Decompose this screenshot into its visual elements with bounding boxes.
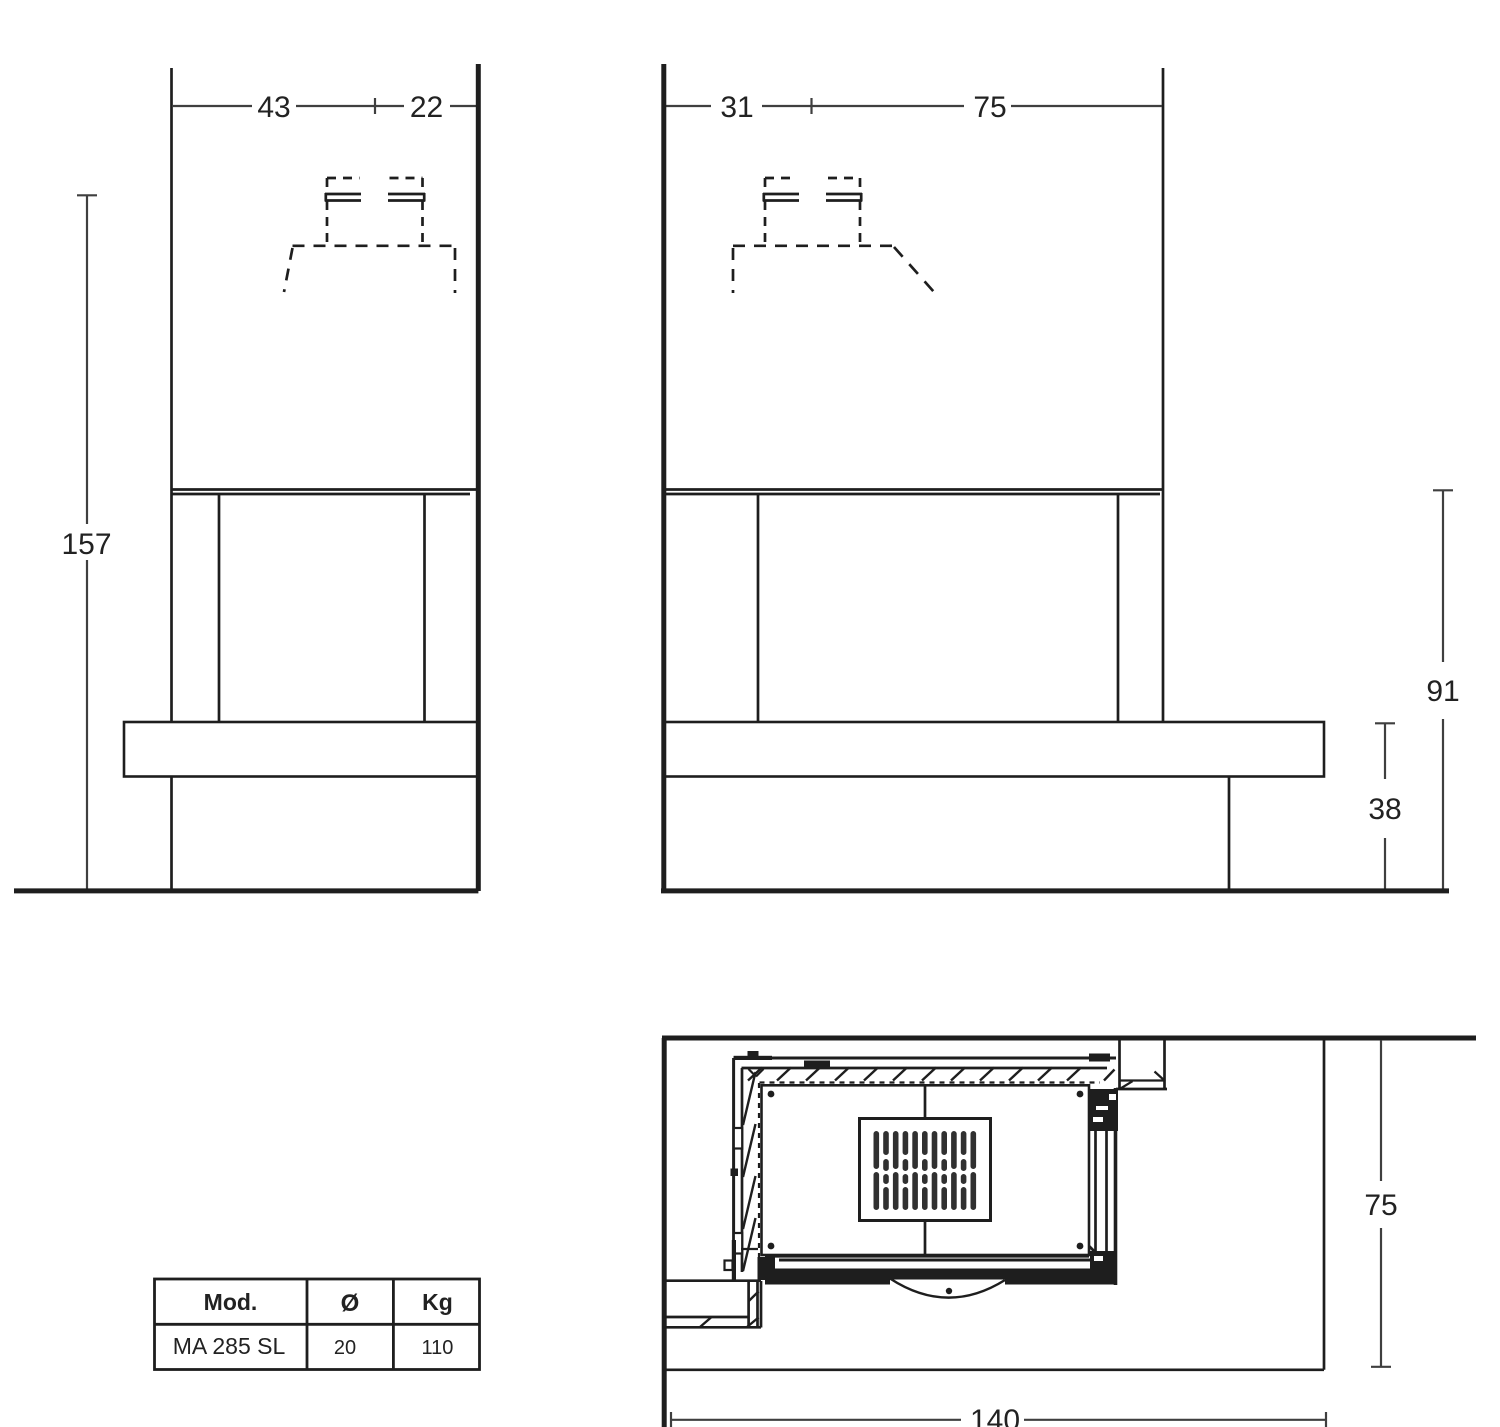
svg-text:Kg: Kg: [422, 1289, 453, 1315]
svg-text:31: 31: [720, 91, 753, 124]
svg-text:140: 140: [970, 1404, 1020, 1427]
svg-text:20: 20: [334, 1337, 356, 1359]
svg-text:Ø: Ø: [341, 1290, 360, 1317]
svg-text:110: 110: [422, 1337, 454, 1359]
svg-text:75: 75: [973, 91, 1006, 124]
svg-text:157: 157: [61, 528, 111, 561]
svg-text:Mod.: Mod.: [204, 1289, 258, 1315]
svg-text:75: 75: [1364, 1189, 1397, 1222]
svg-text:MA 285 SL: MA 285 SL: [173, 1333, 286, 1359]
svg-text:91: 91: [1426, 675, 1459, 708]
svg-text:38: 38: [1368, 793, 1401, 826]
svg-text:43: 43: [257, 91, 290, 124]
svg-text:22: 22: [410, 91, 443, 124]
